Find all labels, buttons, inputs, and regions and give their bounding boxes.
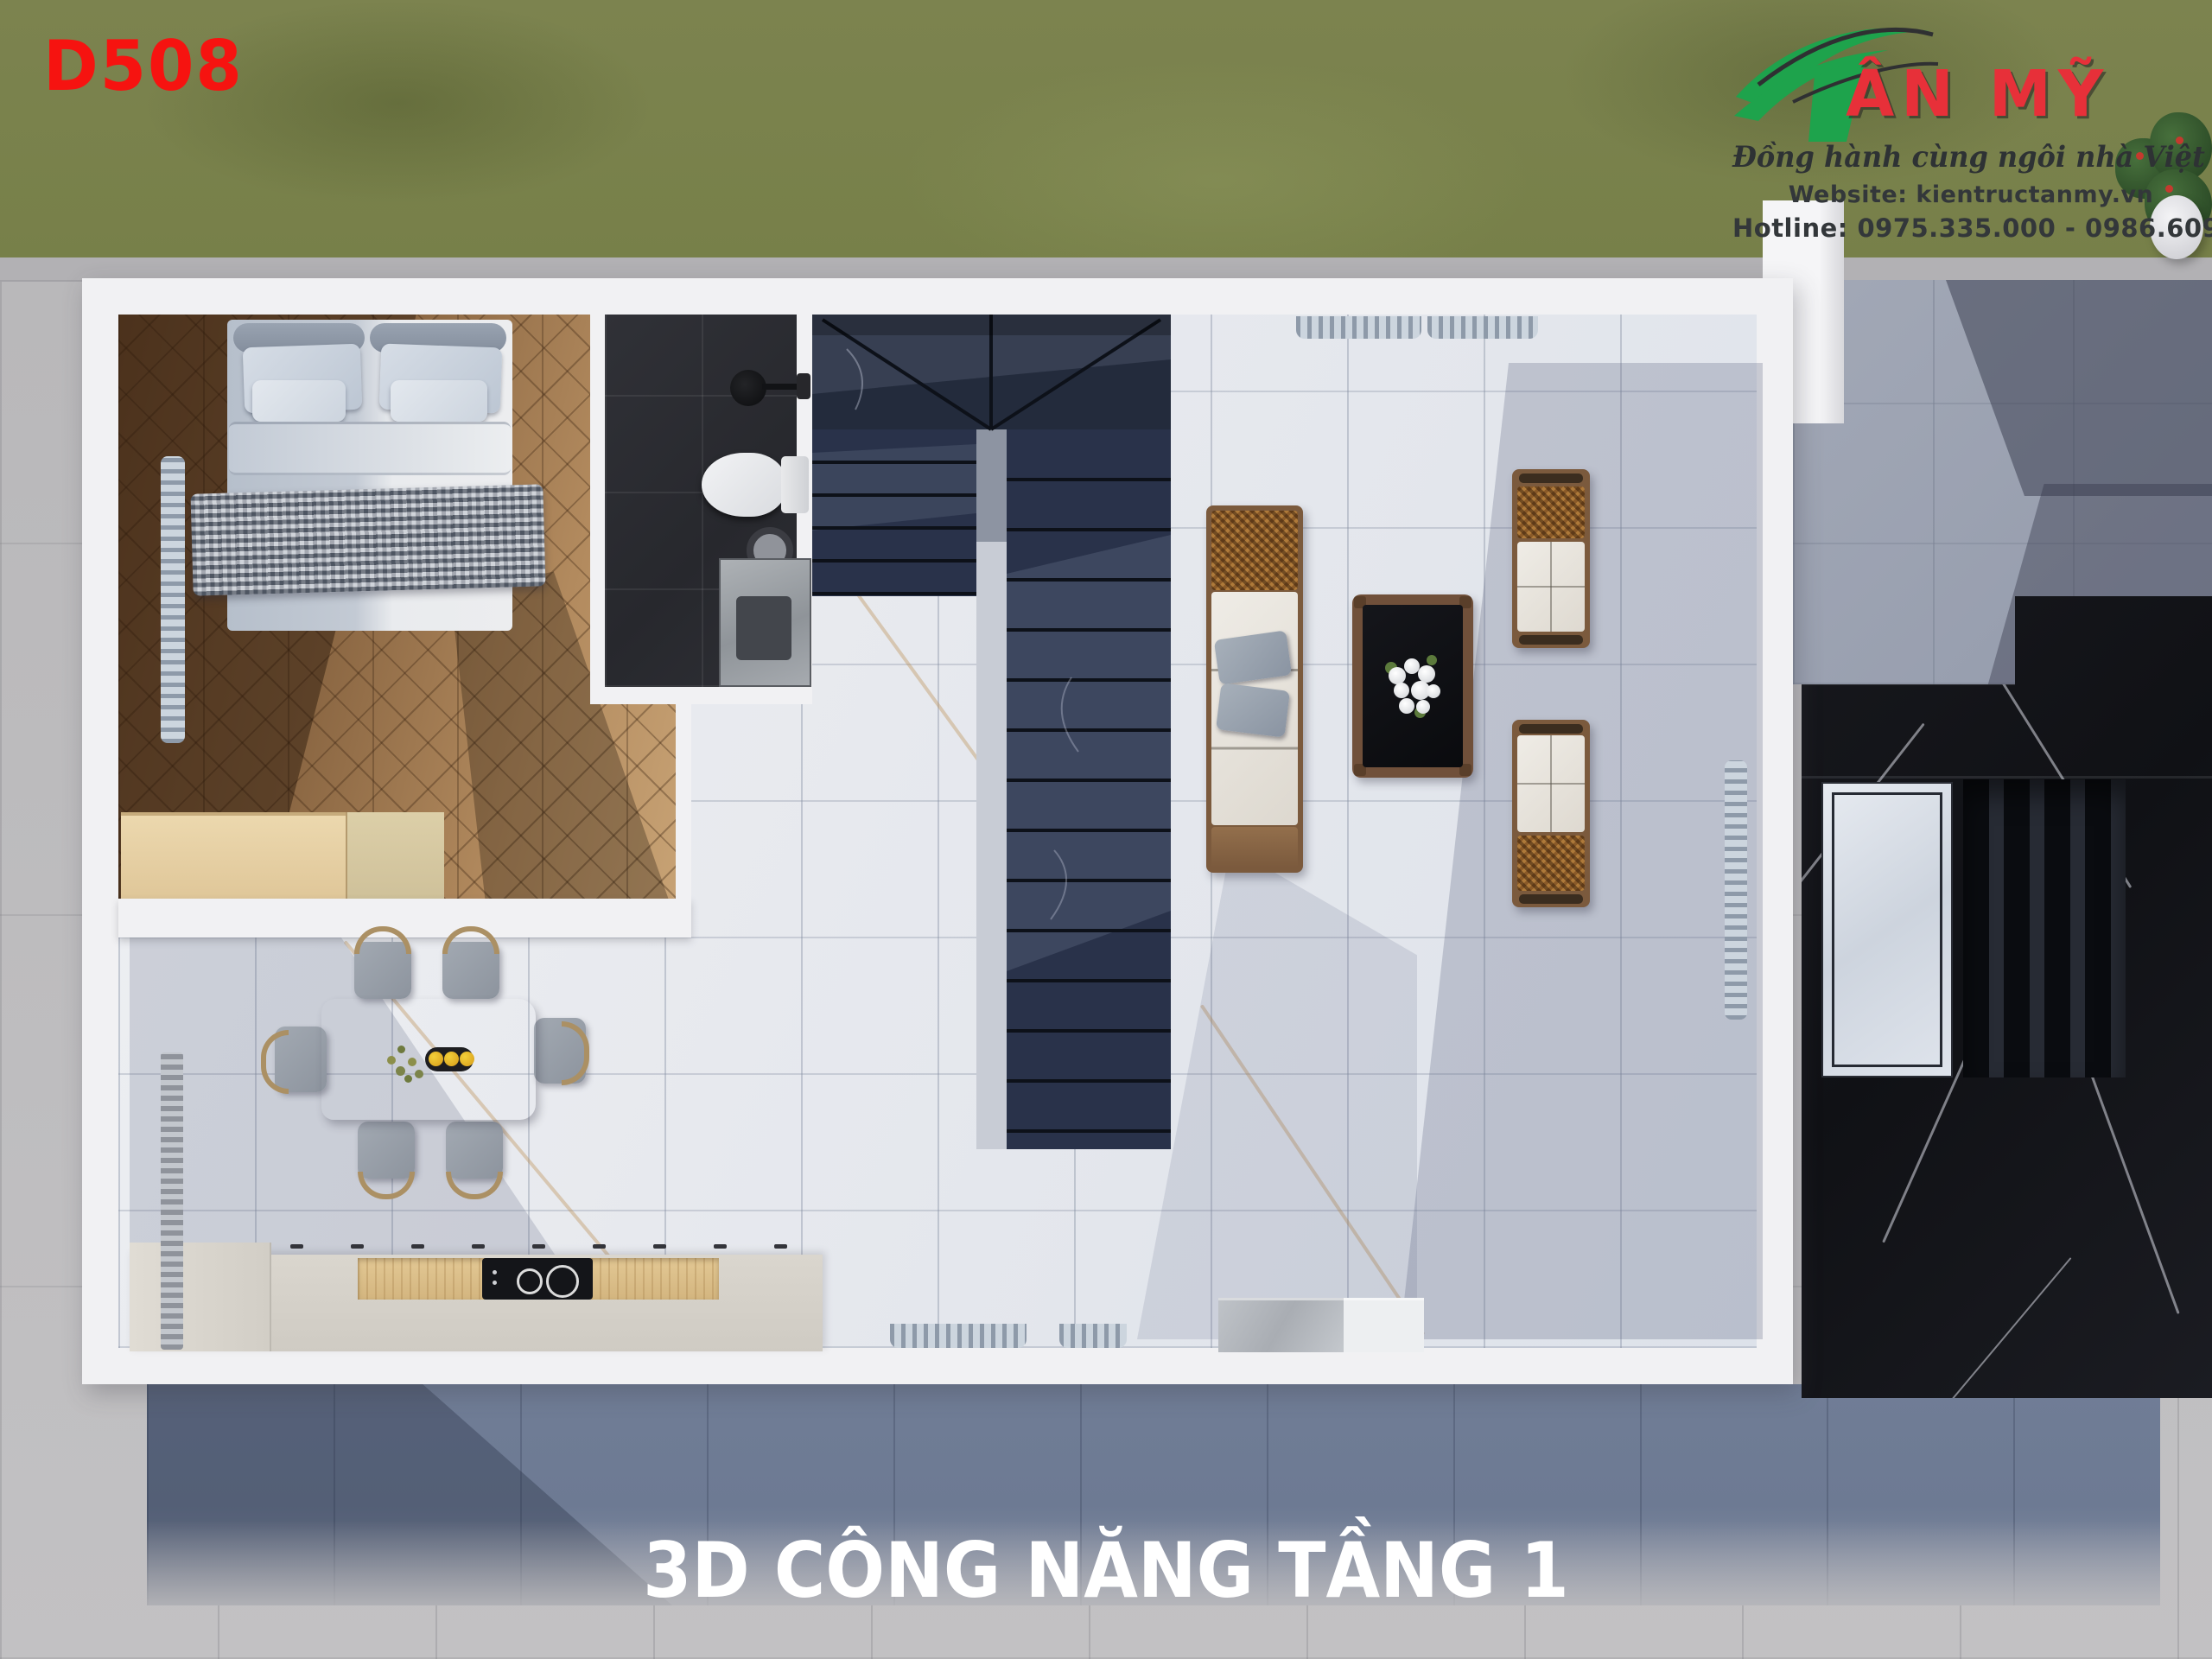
armchair-cushion xyxy=(1517,735,1585,832)
counter-utensil xyxy=(290,1244,303,1249)
white-rose xyxy=(1427,684,1440,698)
armchair xyxy=(1512,469,1590,648)
armrest-rail xyxy=(1519,474,1583,483)
armchair-back-panel xyxy=(1517,486,1585,538)
cooktop xyxy=(482,1258,593,1300)
brand-name-text: ÂN MỸ xyxy=(1846,57,2110,131)
greenery xyxy=(415,1070,423,1078)
armrest-rail xyxy=(1519,894,1583,904)
counter-utensil xyxy=(351,1244,364,1249)
website-value: kientructanmy.vn xyxy=(1916,181,2153,208)
coffee-table xyxy=(1352,594,1473,778)
marble-vein xyxy=(1948,1257,2072,1398)
vanity-counter xyxy=(719,558,811,687)
greenery xyxy=(408,1058,416,1066)
staircase xyxy=(812,315,1171,1149)
toilet-tank xyxy=(781,456,809,513)
dining-chair xyxy=(446,1122,503,1179)
counter-utensil xyxy=(653,1244,666,1249)
greenery xyxy=(396,1066,405,1076)
bedroom-cabinet-end xyxy=(346,812,444,899)
bedroom-partition-wall xyxy=(676,704,691,938)
brand-contact: Website: kientructanmy.vn Hotline: 0975.… xyxy=(1732,181,2209,243)
counter-utensil xyxy=(411,1244,424,1249)
hotline-label: Hotline: xyxy=(1732,213,1848,243)
counter-utensil xyxy=(714,1244,727,1249)
fruit xyxy=(460,1052,474,1066)
sofa-pillow xyxy=(1216,683,1290,737)
brand-row: ÂN MỸ xyxy=(1732,12,2209,142)
ribbed-steps xyxy=(1963,779,2126,1077)
plaid-throw-blanket xyxy=(190,484,545,595)
counter-utensil xyxy=(593,1244,606,1249)
window-curtain xyxy=(890,1324,1027,1348)
marble-vein xyxy=(2082,1053,2179,1314)
counter-utensil xyxy=(472,1244,485,1249)
white-rose xyxy=(1399,698,1414,714)
white-rose xyxy=(1416,700,1430,714)
window-curtain xyxy=(1296,316,1421,339)
armchair xyxy=(1512,720,1590,907)
toilet xyxy=(702,453,786,517)
floorplan-render-canvas: D508 3D CÔNG NĂNG TẦNG 1 ÂN MỸ Đồng hành… xyxy=(0,0,2212,1659)
shower-valve xyxy=(797,373,810,399)
window-curtain xyxy=(1427,316,1538,339)
leaf xyxy=(1427,655,1437,665)
inset-frame xyxy=(1832,792,1942,1067)
armrest-rail xyxy=(1519,724,1583,734)
burner-ring xyxy=(546,1265,579,1298)
armrest-rail xyxy=(1519,635,1583,645)
brand-logo-block: ÂN MỸ Đồng hành cùng ngôi nhà Việt Websi… xyxy=(1732,12,2209,244)
greenery xyxy=(404,1075,412,1083)
sofa-back-panel xyxy=(1211,511,1298,590)
burner-ring xyxy=(517,1268,543,1294)
window-curtain xyxy=(1725,760,1747,1020)
bathroom-tile-floor xyxy=(605,315,797,687)
fruit xyxy=(444,1052,459,1066)
sofa-base xyxy=(1211,827,1298,868)
bedroom-curtain xyxy=(161,456,185,743)
fruit xyxy=(429,1052,443,1066)
greenery xyxy=(387,1056,396,1065)
counter-utensil xyxy=(774,1244,787,1249)
counter-utensil xyxy=(532,1244,545,1249)
bed-pillow-small xyxy=(391,380,487,422)
page-title: 3D CÔNG NĂNG TẦNG 1 xyxy=(88,1526,2123,1615)
console-cabinet xyxy=(1344,1298,1424,1352)
armchair-cushion xyxy=(1517,542,1585,632)
white-rose xyxy=(1418,665,1435,683)
marble-console xyxy=(1218,1298,1344,1352)
white-marble-inset xyxy=(1821,782,1953,1077)
bed-pillow-small xyxy=(252,380,346,422)
control-dot xyxy=(493,1281,497,1285)
table-centerpiece xyxy=(387,1037,465,1099)
greenery xyxy=(397,1046,405,1053)
white-rose xyxy=(1394,683,1409,698)
dining-chair xyxy=(358,1122,415,1179)
sink-basin xyxy=(736,596,791,660)
wall-louver xyxy=(161,1052,183,1350)
duvet-fold xyxy=(229,422,511,475)
bedroom-wall xyxy=(118,899,691,938)
website-label: Website: xyxy=(1789,181,1908,208)
window-curtain xyxy=(1059,1324,1127,1348)
kitchen-counter-column xyxy=(130,1243,271,1351)
plan-code-label: D508 xyxy=(43,26,244,106)
control-dot xyxy=(493,1270,497,1274)
white-rose xyxy=(1389,667,1406,684)
armchair-back-panel xyxy=(1517,836,1585,891)
website-line: Website: kientructanmy.vn xyxy=(1732,181,2209,208)
hotline-value: 0975.335.000 - 0986.609.259 xyxy=(1857,213,2212,243)
coffee-table-top xyxy=(1363,605,1463,767)
brand-tagline: Đồng hành cùng ngôi nhà Việt xyxy=(1732,140,2106,175)
hotline-line: Hotline: 0975.335.000 - 0986.609.259 xyxy=(1732,213,2209,243)
slab-edge-line xyxy=(1802,776,2212,779)
bathroom xyxy=(590,315,812,704)
sofa xyxy=(1206,505,1303,873)
shower-drain-icon xyxy=(730,370,766,406)
